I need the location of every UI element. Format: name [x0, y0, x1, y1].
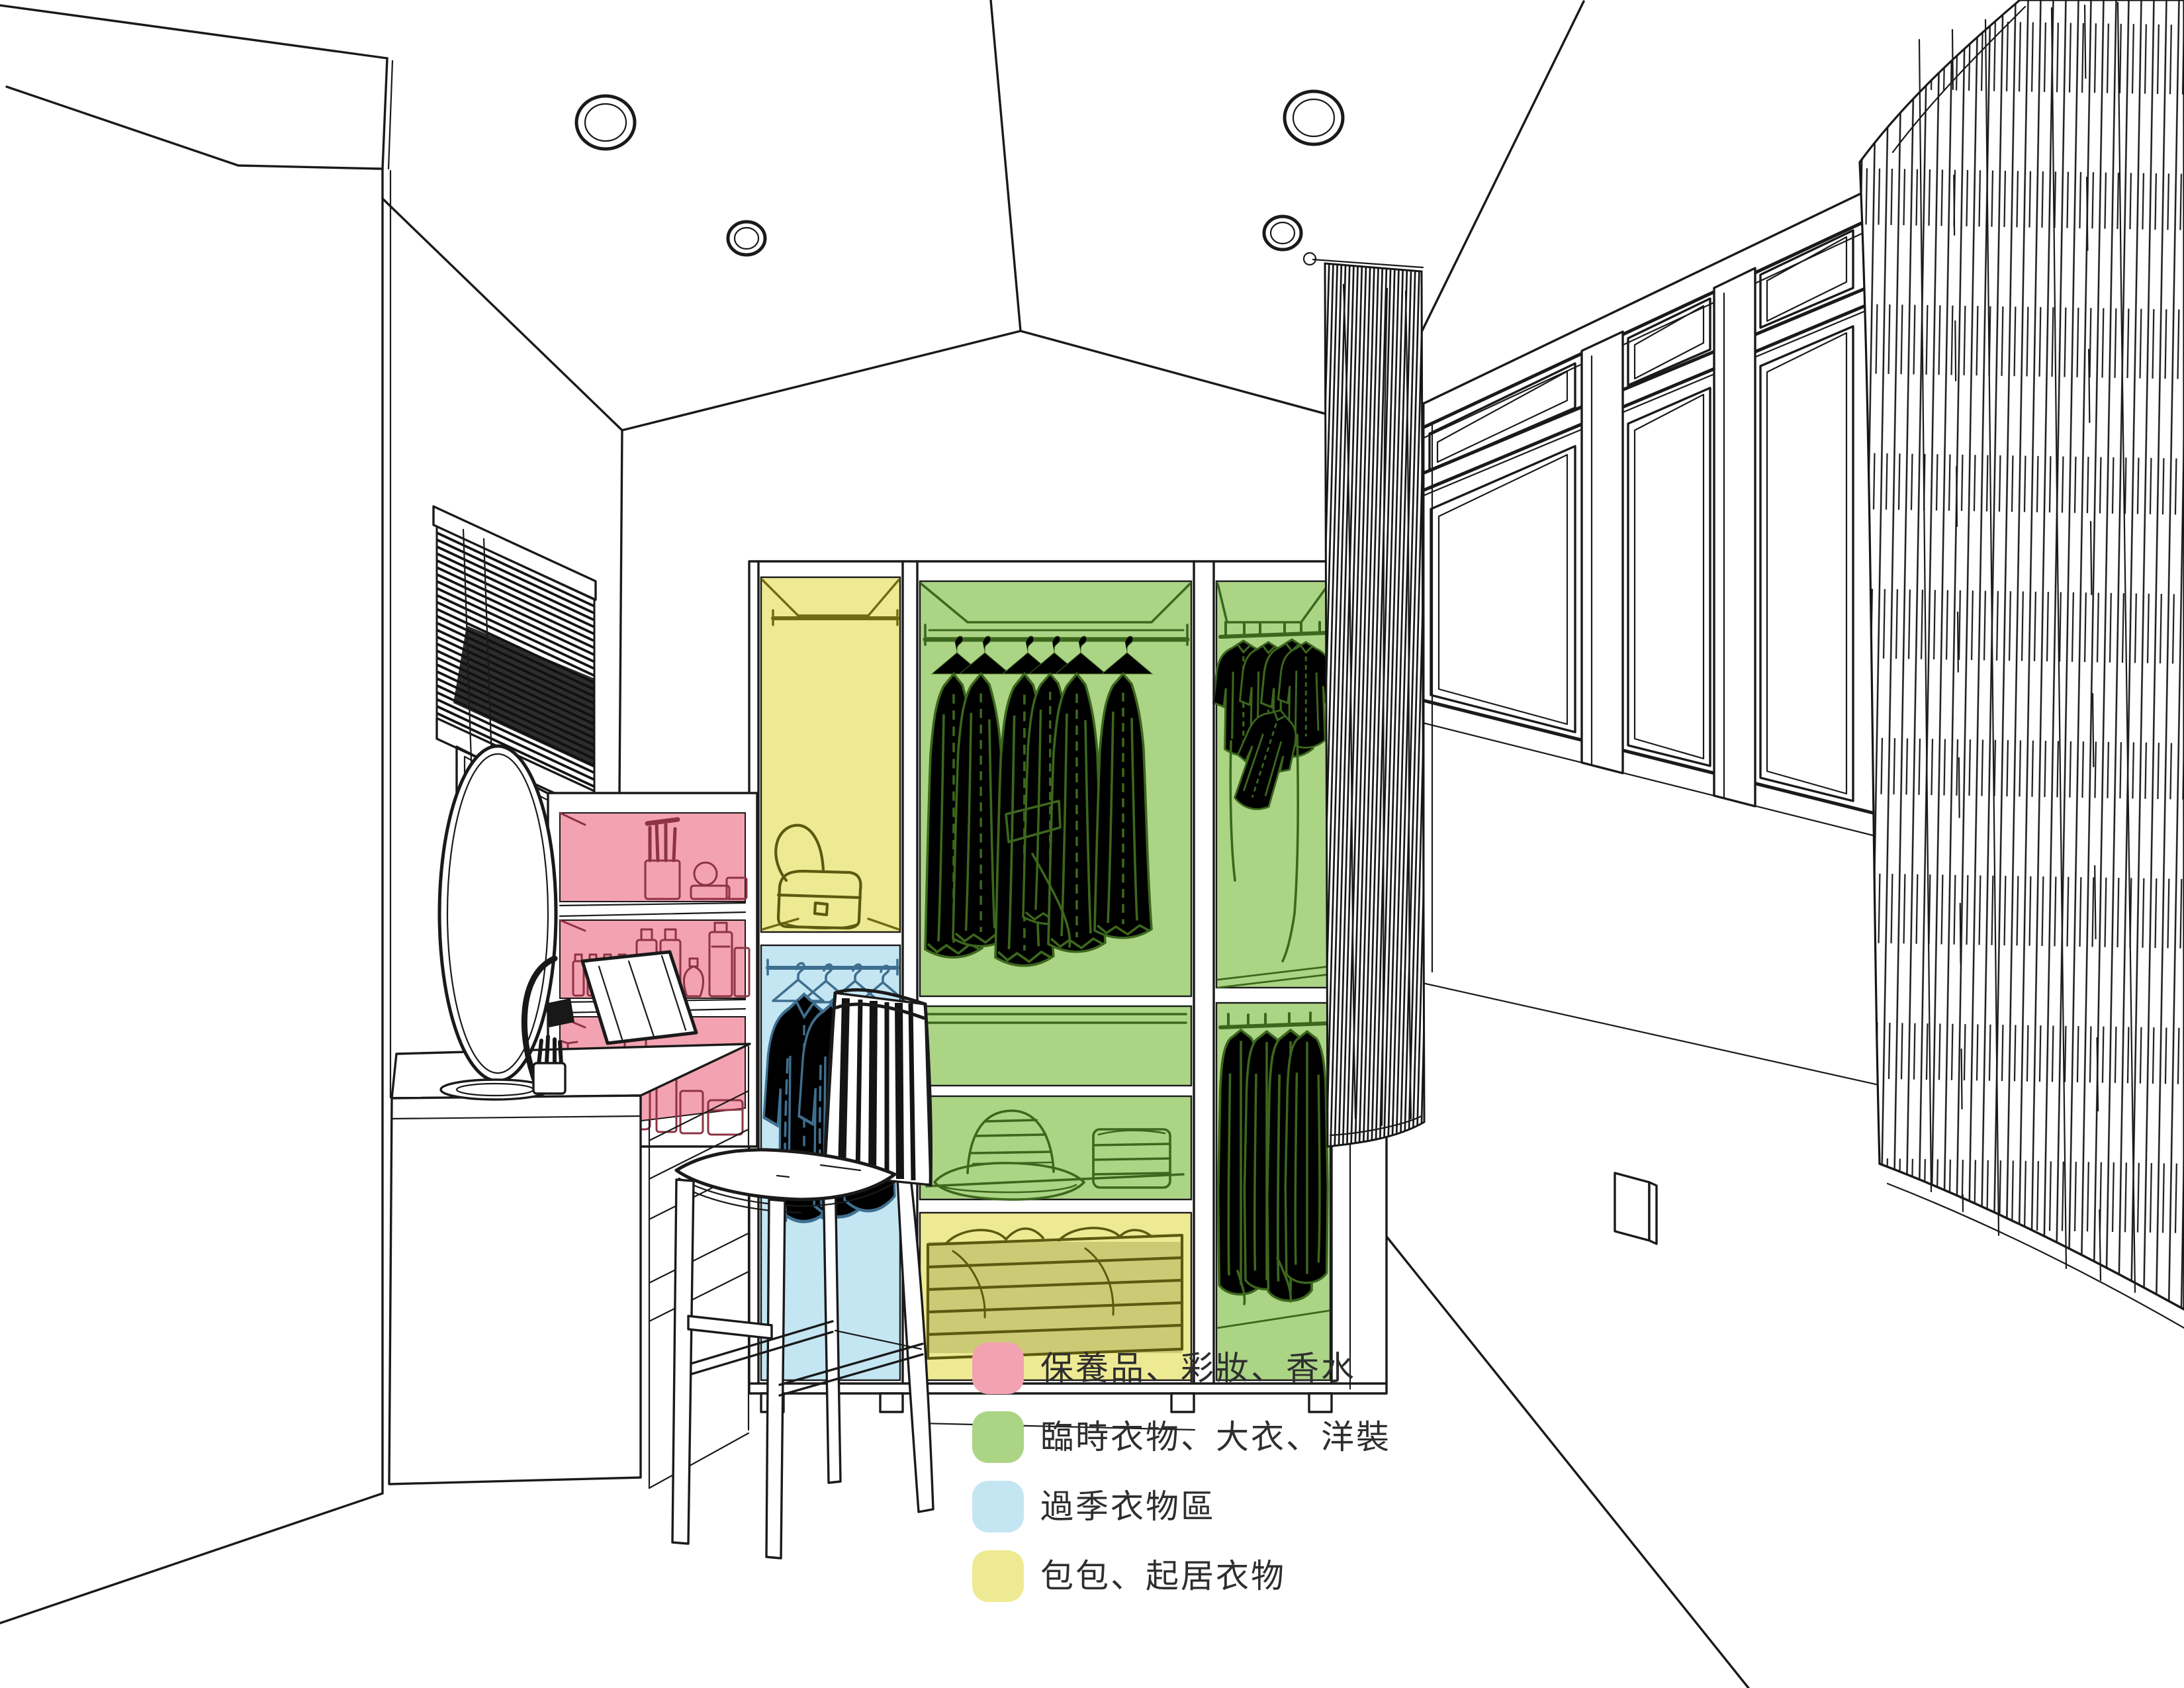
- wardrobe-foot: [1171, 1393, 1194, 1412]
- window-mullion: [1714, 268, 1755, 806]
- light-switch: [1615, 1173, 1657, 1244]
- zone-cosmetics-shelf-1: [560, 813, 745, 902]
- ceiling-left-edge: [383, 199, 622, 430]
- wire-basket: [928, 1228, 1182, 1358]
- floor-wall-junction: [1387, 1237, 1749, 1688]
- backwall-left-corner: [619, 430, 622, 793]
- legend-swatch-blue: [972, 1481, 1024, 1532]
- hanging-long-clothes: [1218, 1030, 1328, 1304]
- chair-front-leg: [766, 1199, 785, 1558]
- window-mullion: [1582, 332, 1623, 773]
- ceiling-soffit: [0, 5, 392, 169]
- legend-label: 保養品、彩妝、香水: [1040, 1342, 1356, 1394]
- vanity-mirror: [439, 746, 556, 1100]
- recessed-light-icon: [576, 91, 1343, 255]
- legend-swatch-yellow: [972, 1550, 1024, 1602]
- brush-cup: [533, 1037, 565, 1094]
- chair-front-leg: [672, 1180, 694, 1544]
- walk-in-closet-rendering: 保養品、彩妝、香水 臨時衣物、大衣、洋裝 過季衣物區 包包、起居衣物: [0, 0, 2184, 1688]
- legend-label: 包包、起居衣物: [1040, 1550, 1286, 1602]
- desk-front: [389, 1096, 641, 1484]
- backwall-top-edge: [622, 331, 1374, 430]
- legend-label: 臨時衣物、大衣、洋裝: [1040, 1411, 1391, 1463]
- legend-item-bags-loungewear: 包包、起居衣物: [972, 1550, 1286, 1602]
- daily-drawer: [920, 1006, 1191, 1086]
- legend-swatch-green: [972, 1411, 1024, 1463]
- curtain-right: [1860, 0, 2184, 1328]
- wardrobe-foot: [1309, 1393, 1332, 1412]
- left-baseboard: [0, 1493, 383, 1623]
- legend-swatch-pink: [972, 1342, 1024, 1394]
- wardrobe-right-column: [1214, 581, 1334, 1380]
- legend-label: 過季衣物區: [1040, 1481, 1216, 1532]
- wardrobe-foot: [880, 1393, 903, 1412]
- wardrobe-middle-column: [920, 581, 1191, 1380]
- legend-item-daily-clothes: 臨時衣物、大衣、洋裝: [972, 1411, 1391, 1463]
- legend-item-off-season: 過季衣物區: [972, 1481, 1216, 1532]
- ceiling-fold: [991, 0, 1021, 331]
- legend-item-cosmetics: 保養品、彩妝、香水: [972, 1342, 1356, 1394]
- transom-pane: [1430, 230, 1853, 471]
